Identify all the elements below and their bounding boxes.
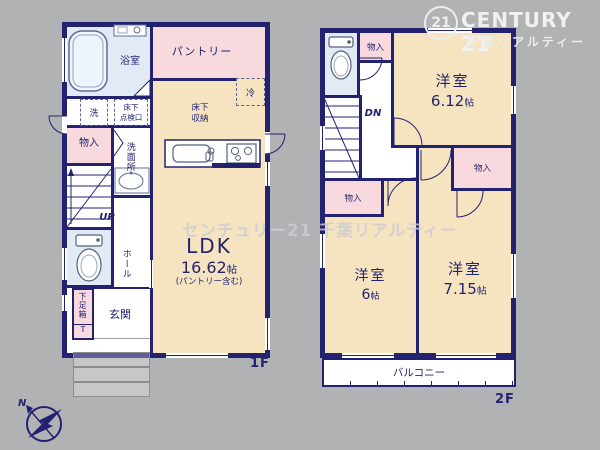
kitchen-icon xyxy=(165,140,260,168)
floor1-fixtures xyxy=(62,22,270,358)
washroom-label: 洗面所 xyxy=(124,129,135,185)
bedroom-715-size-number: 7.15 xyxy=(443,280,476,298)
underfloor-line2: 収納 xyxy=(191,114,208,124)
underfloor-line1: 床下 xyxy=(191,103,208,113)
compass-north-label: N xyxy=(18,398,27,409)
seal-number: 21 xyxy=(431,15,450,31)
bedroom-715-name: 洋室 xyxy=(416,260,514,278)
entrance-step xyxy=(73,367,150,382)
bedroom-6-size: 6帖 xyxy=(322,287,419,304)
floor2-tag: 2F xyxy=(495,392,515,407)
ldk-size-label: 16.62帖 xyxy=(150,258,268,277)
bedroom-612-size-number: 6.12 xyxy=(431,92,464,110)
bathroom-door-icon xyxy=(134,80,150,96)
ldk-size-unit: 帖 xyxy=(227,264,237,276)
bathroom-label: 浴室 xyxy=(112,56,148,68)
floor1-plan: 冷 下足箱 T 洗 床下点検口 xyxy=(62,22,270,358)
underfloor-storage-label: 床下 収納 xyxy=(182,103,218,125)
bedroom-6-size-unit: 帖 xyxy=(370,292,379,302)
stairs-2f-icon xyxy=(325,100,359,178)
bedroom-715-size-unit: 帖 xyxy=(477,286,487,297)
stairs-dn-label: DN xyxy=(356,108,390,120)
century21-seal: 21 xyxy=(424,6,458,40)
bathtub-icon xyxy=(69,31,107,91)
entrance-step xyxy=(73,382,150,397)
toilet-2f-icon xyxy=(329,37,353,79)
toilet-1f-icon xyxy=(76,235,102,281)
floor2-plan: 物入 物入 物入 xyxy=(320,28,516,358)
entrance-label: 玄関 xyxy=(98,308,142,321)
bedroom-715-size: 7.15帖 xyxy=(416,280,514,298)
brand-subname: 千葉リアルティー xyxy=(467,33,586,50)
stairs-up-label: UP xyxy=(90,212,124,224)
storage-1f-label: 物入 xyxy=(64,138,114,150)
bedroom-612-size: 6.12帖 xyxy=(391,92,514,110)
entrance-step xyxy=(73,352,150,367)
bedroom-612-size-unit: 帖 xyxy=(464,98,474,109)
floor1-tag: 1F xyxy=(250,356,270,371)
bedroom-6-name: 洋室 xyxy=(322,268,419,285)
ldk-note-label: (パントリー含む) xyxy=(150,277,268,287)
floorplan-page: { "brand": { "seal": "21", "name": "CENT… xyxy=(0,0,600,450)
ldk-size-number: 16.62 xyxy=(181,258,227,277)
pantry-label: パントリー xyxy=(162,45,242,58)
hall-label: ホール xyxy=(120,238,131,290)
balcony-label: バルコニー xyxy=(393,365,445,380)
balcony: バルコニー xyxy=(322,358,516,387)
compass-icon: N xyxy=(16,394,70,448)
watermark: センチュリー21 千葉リアルティー xyxy=(182,217,458,241)
bedroom-612-name: 洋室 xyxy=(391,72,514,90)
bifold-door-icon xyxy=(114,130,123,156)
bath-counter-icon xyxy=(114,25,146,36)
